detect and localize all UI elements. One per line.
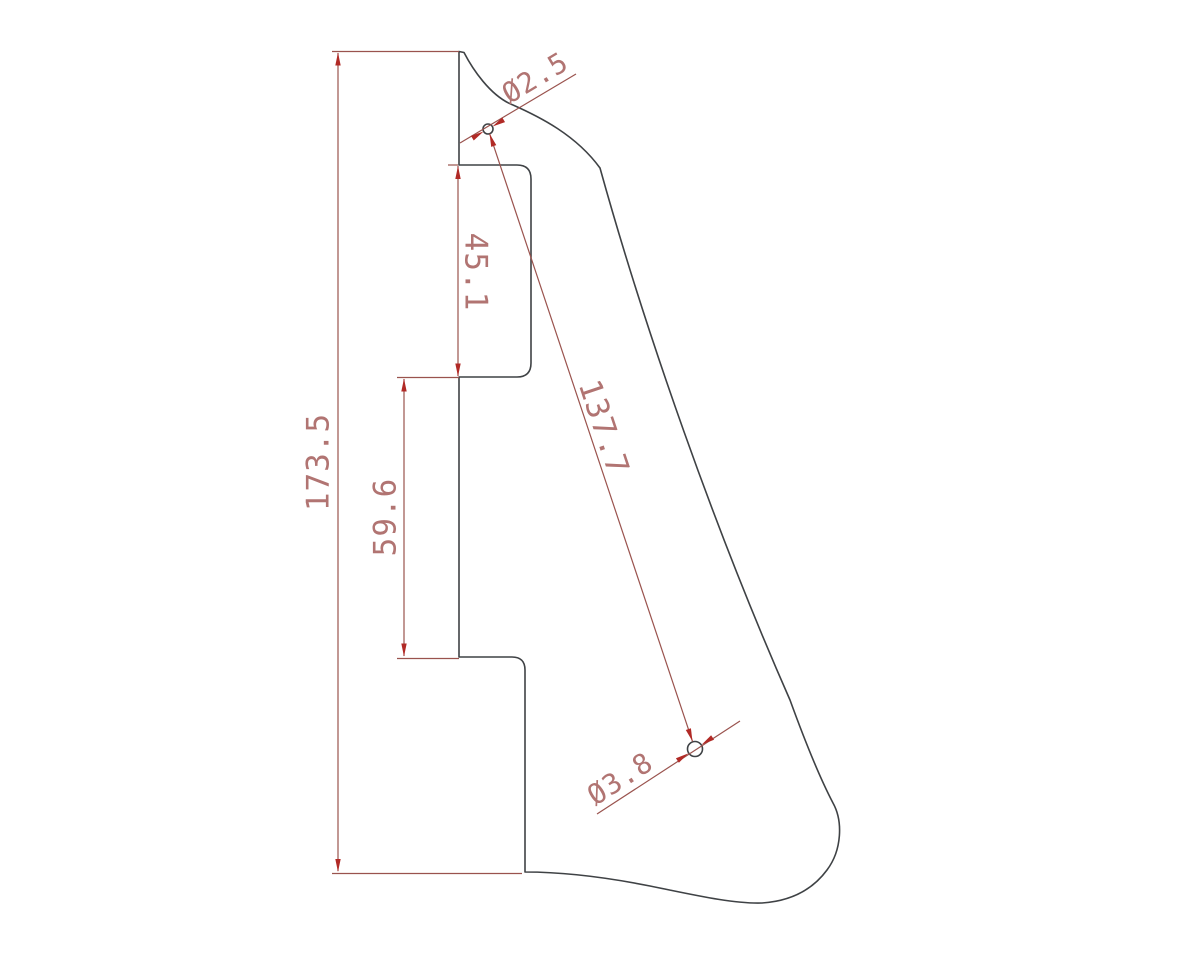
drawing-canvas: 173.5 45.1 59.6 137.7 Ø2.5 Ø3.8 — [0, 0, 1200, 960]
notch-height-label: 45.1 — [458, 233, 494, 312]
arrow-overall-bottom — [335, 859, 340, 872]
hole-spacing-label: 137.7 — [571, 375, 636, 480]
technical-drawing: 173.5 45.1 59.6 137.7 Ø2.5 Ø3.8 — [0, 0, 1200, 960]
dimension-line-group — [332, 52, 740, 874]
arrow-mid-top — [401, 379, 406, 392]
dimension-text-group: 173.5 45.1 59.6 137.7 Ø2.5 Ø3.8 — [301, 45, 660, 812]
small-hole-diameter-label: Ø2.5 — [496, 45, 574, 110]
arrow-spacing-at-bottom-hole — [686, 728, 695, 742]
arrow-spacing-at-top-hole — [487, 133, 496, 147]
mid-section-height-label: 59.6 — [368, 478, 404, 557]
arrow-notch-top — [455, 166, 460, 179]
arrow-notch-bottom — [455, 364, 460, 377]
large-hole-diameter-label: Ø3.8 — [581, 745, 659, 812]
overall-height-label: 173.5 — [301, 413, 337, 511]
arrow-mid-bottom — [401, 644, 406, 657]
arrow-overall-top — [335, 53, 340, 66]
